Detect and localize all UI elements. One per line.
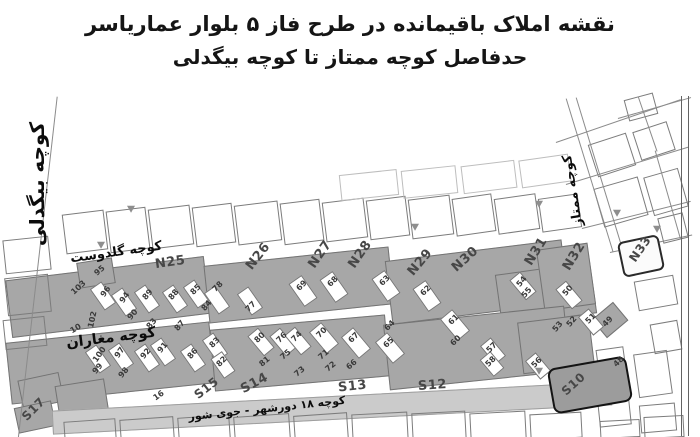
map-parcel-shape — [293, 412, 349, 437]
map-parcel-shape — [3, 316, 48, 350]
map-parcel-shape — [494, 193, 541, 234]
map-parcel-shape — [633, 350, 673, 398]
map-parcel-shape — [280, 199, 325, 246]
map-parcel-shape — [63, 418, 116, 437]
map-parcel-shape — [119, 416, 174, 437]
map-parcel-shape — [650, 320, 683, 354]
map-parcel-shape — [192, 203, 237, 248]
map-parcel-shape — [469, 411, 526, 437]
block-label: S13 — [337, 378, 367, 396]
map-parcel-shape — [639, 402, 677, 433]
map-parcel-shape — [408, 195, 455, 240]
map-parcel-shape — [351, 412, 408, 437]
map-parcel-shape — [4, 274, 52, 316]
map-parcel-shape — [401, 165, 459, 199]
title-line-1: نقشه املاک باقیمانده در طرح فاز ۵ بلوار … — [0, 12, 700, 36]
map-parcel-shape — [411, 411, 466, 437]
map-parcel-shape — [366, 196, 411, 241]
map-parcel-shape — [460, 160, 517, 194]
map-border — [681, 96, 689, 436]
block-label: S12 — [418, 377, 448, 394]
map-parcel-shape — [634, 275, 679, 311]
map-figure: نقشه املاک باقیمانده در طرح فاز ۵ بلوار … — [0, 0, 700, 437]
cadastral-map: کوچه بیگدلی کوچه گلدوست کوچه مغاران کوچه… — [0, 95, 700, 437]
title-line-2: حدفاصل کوچه ممتاز تا کوچه بیگدلی — [0, 45, 700, 69]
map-title: نقشه املاک باقیمانده در طرح فاز ۵ بلوار … — [0, 12, 700, 69]
map-parcel-shape — [234, 200, 283, 245]
map-parcel-shape — [339, 169, 399, 201]
map-parcel-shape — [452, 193, 497, 236]
map-parcel-shape — [529, 412, 582, 437]
street-label-bigdeli: کوچه بیگدلی — [25, 99, 49, 269]
parcel-number: 16 — [151, 389, 165, 403]
map-parcel-shape — [322, 198, 369, 243]
